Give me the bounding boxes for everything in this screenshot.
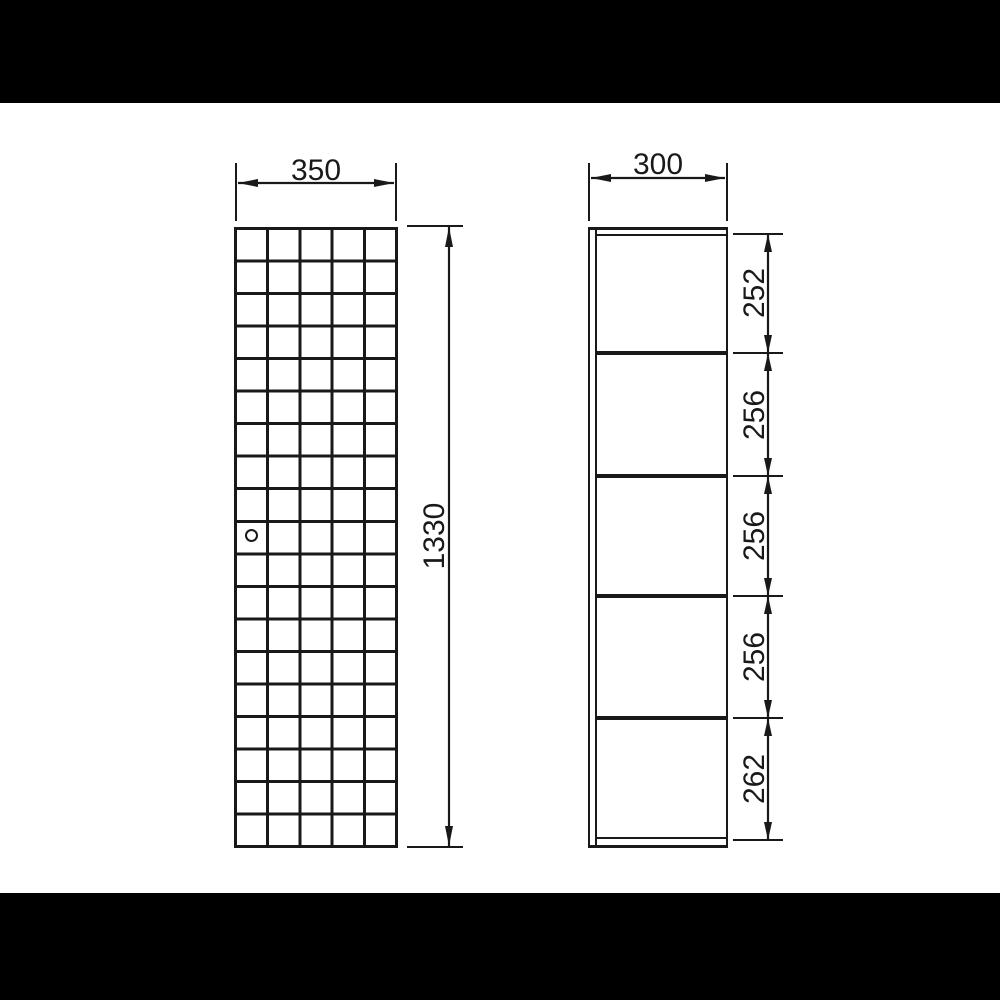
dim-front-width: 350 (236, 154, 396, 221)
dim-label-section-5: 262 (738, 754, 771, 804)
dim-label-section-1: 252 (738, 268, 771, 318)
side-door-panel-line (595, 230, 597, 845)
letterbox-top-bar (0, 0, 1000, 103)
letterbox-bottom-bar (0, 893, 1000, 1000)
shelf-line (597, 594, 726, 598)
dim-label-section-4: 256 (738, 632, 771, 682)
shelf-line (597, 716, 726, 720)
dim-side-sections: 252 256 256 256 262 (733, 234, 783, 840)
dim-label-section-3: 256 (738, 511, 771, 561)
shelf-line (597, 474, 726, 478)
door-knob (245, 529, 258, 542)
dim-label-front-width: 350 (291, 154, 341, 187)
bottom-panel-line (595, 837, 726, 839)
front-view-grid-door (234, 227, 398, 848)
dim-label-section-2: 256 (738, 390, 771, 440)
dim-side-width: 300 (589, 148, 727, 221)
dim-front-height: 1330 (407, 226, 463, 847)
dimension-overlay: 350 1330 300 (0, 0, 1000, 1000)
shelf-line (597, 351, 726, 355)
top-panel-line (595, 234, 726, 236)
dim-label-front-height: 1330 (418, 503, 451, 570)
dim-label-side-width: 300 (633, 148, 683, 181)
drawing-canvas: 350 1330 300 (0, 0, 1000, 1000)
side-view-outline (588, 227, 728, 848)
